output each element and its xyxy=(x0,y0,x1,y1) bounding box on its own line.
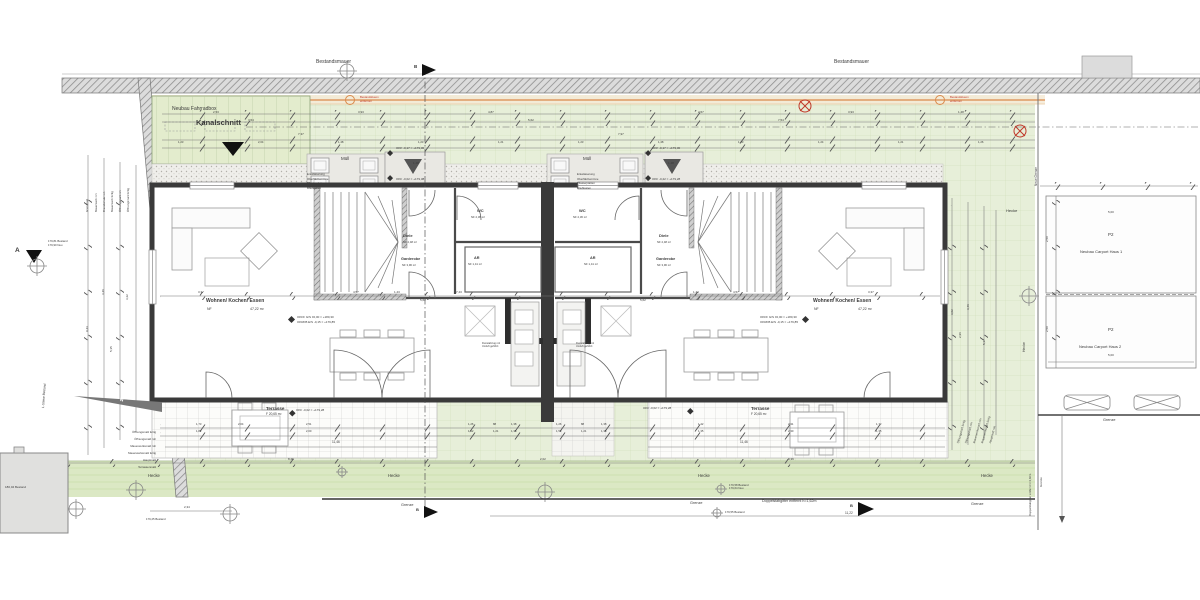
floorplan-drawing xyxy=(0,0,1200,600)
section-b-arrow-icon xyxy=(858,502,874,516)
floorplan-sheet: BestandsmauerBestandsmauerKanalschnittNe… xyxy=(0,0,1200,600)
carport-haus1 xyxy=(1046,196,1196,293)
section-a-arrow-icon xyxy=(26,250,42,263)
bestandsmauer-wall xyxy=(62,56,1200,93)
entrance-porch-left xyxy=(385,152,445,186)
car-symbol xyxy=(1064,395,1110,410)
existing-structure-block xyxy=(1082,56,1132,78)
entrance-porch-right xyxy=(645,152,703,186)
car-symbol xyxy=(1134,395,1180,410)
existing-building xyxy=(0,447,68,533)
carport-area xyxy=(1038,93,1200,530)
building xyxy=(149,150,948,422)
party-wall xyxy=(541,182,554,422)
fahrradbox xyxy=(152,96,310,164)
section-b-arrow-icon xyxy=(424,506,438,518)
carport-haus2 xyxy=(1046,296,1196,368)
